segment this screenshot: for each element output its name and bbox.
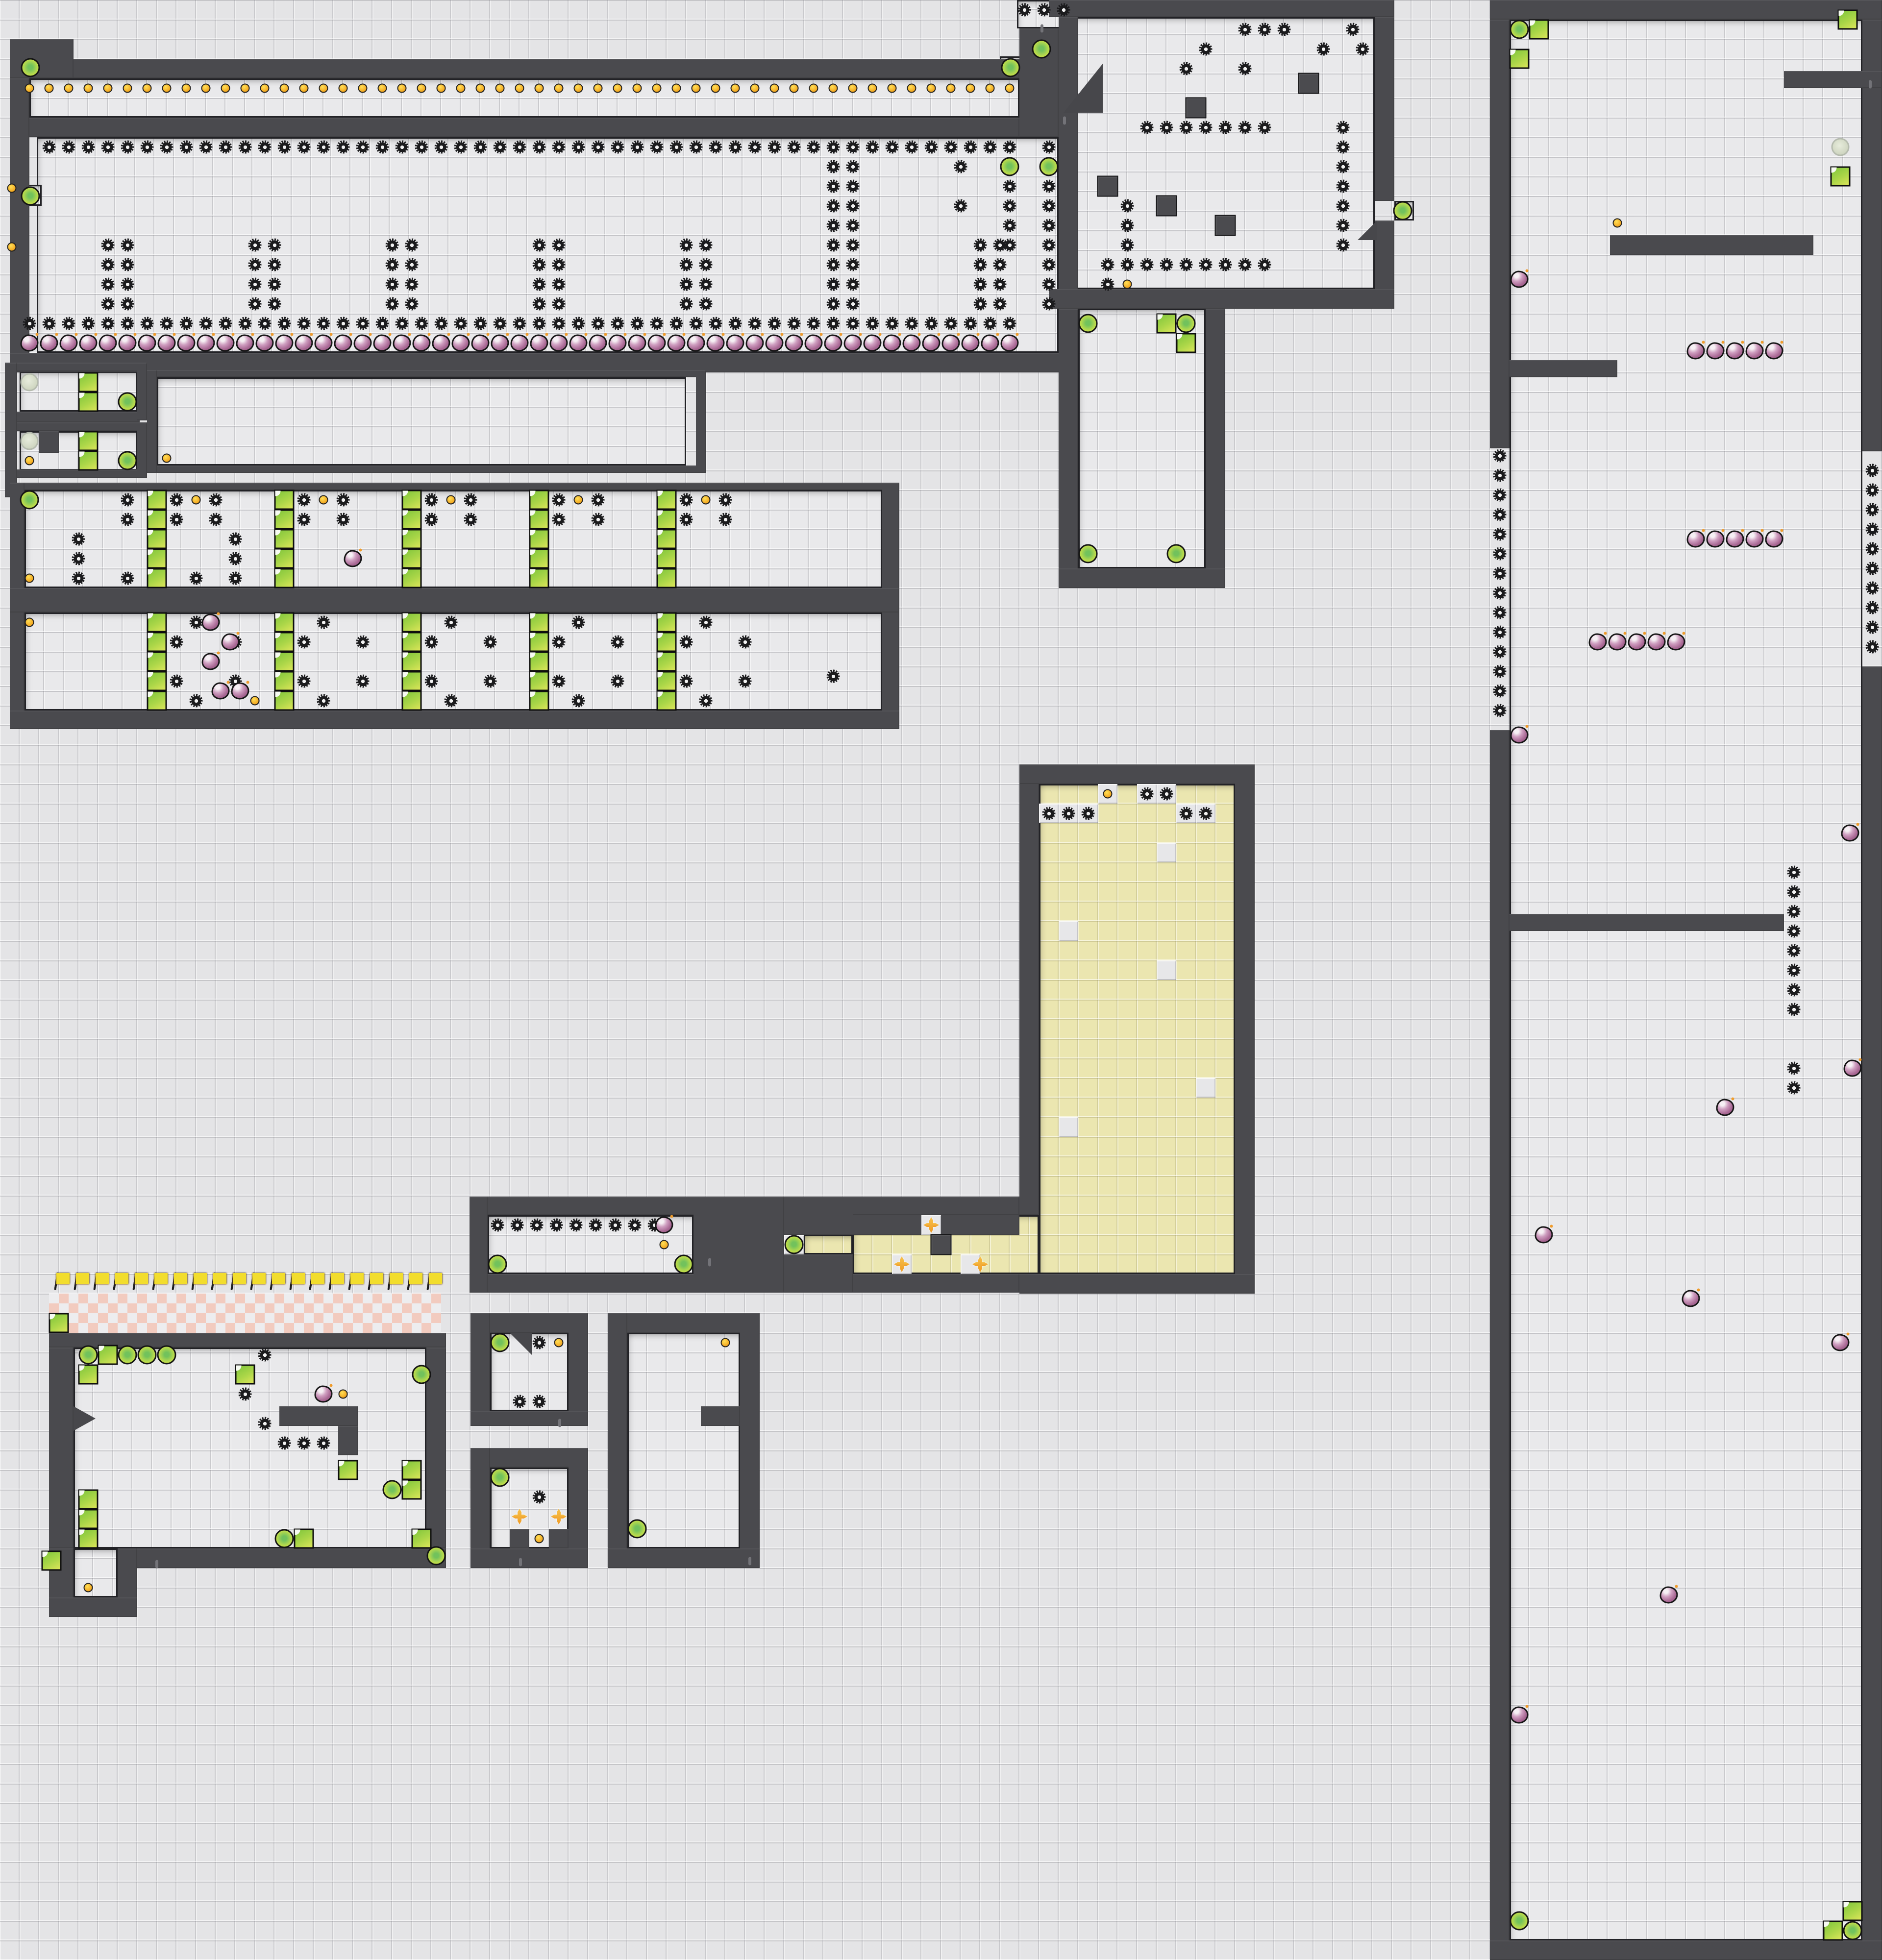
coin-dot[interactable]	[358, 84, 368, 93]
saw-gear-icon[interactable]	[964, 317, 977, 330]
saw-gear-icon[interactable]	[82, 141, 95, 154]
saw-gear-icon[interactable]	[709, 317, 722, 330]
saw-gear-icon[interactable]	[846, 219, 860, 232]
saw-gear-icon[interactable]	[974, 297, 987, 311]
saw-gear-icon[interactable]	[886, 141, 899, 154]
saw-gear-icon[interactable]	[1337, 199, 1350, 213]
saw-gear-icon[interactable]	[1042, 219, 1056, 232]
saw-gear-icon[interactable]	[1787, 944, 1801, 957]
saw-gear-icon[interactable]	[1866, 523, 1879, 536]
crate-tile[interactable]	[657, 612, 677, 633]
saw-gear-icon[interactable]	[827, 141, 840, 154]
saw-gear-icon[interactable]	[846, 160, 860, 173]
saw-gear-icon[interactable]	[533, 1336, 546, 1349]
saw-gear-icon[interactable]	[337, 493, 350, 507]
saw-gear-icon[interactable]	[1199, 121, 1213, 134]
saw-gear-icon[interactable]	[572, 141, 585, 154]
saw-gear-icon[interactable]	[592, 493, 605, 507]
coin-dot[interactable]	[25, 618, 34, 627]
crate-tile[interactable]	[274, 529, 295, 549]
crate-tile[interactable]	[274, 632, 295, 652]
saw-gear-icon[interactable]	[511, 1219, 524, 1232]
saw-gear-icon[interactable]	[954, 199, 967, 213]
saw-gear-icon[interactable]	[1866, 503, 1879, 516]
checkpoint-flag-icon[interactable]	[230, 1273, 247, 1291]
crate-tile[interactable]	[294, 1529, 314, 1549]
crate-tile[interactable]	[402, 529, 422, 549]
saw-gear-icon[interactable]	[533, 239, 546, 252]
crate-tile[interactable]	[402, 1480, 422, 1500]
saw-gear-icon[interactable]	[592, 141, 605, 154]
coin-dot[interactable]	[280, 84, 289, 93]
checkpoint-flag-icon[interactable]	[210, 1273, 227, 1291]
saw-gear-icon[interactable]	[170, 493, 183, 507]
coin-dot[interactable]	[162, 454, 172, 463]
saw-gear-icon[interactable]	[258, 317, 272, 330]
crate-tile[interactable]	[657, 652, 677, 672]
saw-gear-icon[interactable]	[1042, 141, 1056, 154]
saw-gear-icon[interactable]	[356, 675, 370, 688]
saw-gear-icon[interactable]	[748, 317, 762, 330]
saw-gear-icon[interactable]	[1493, 587, 1507, 600]
saw-gear-icon[interactable]	[552, 297, 566, 311]
saw-gear-icon[interactable]	[386, 297, 399, 311]
coin-dot[interactable]	[986, 84, 995, 93]
saw-gear-icon[interactable]	[572, 616, 585, 629]
saw-gear-icon[interactable]	[386, 239, 399, 252]
coin-dot[interactable]	[574, 84, 583, 93]
saw-gear-icon[interactable]	[699, 297, 713, 311]
saw-gear-icon[interactable]	[141, 317, 154, 330]
power-orb[interactable]	[383, 1480, 402, 1499]
coin-dot[interactable]	[731, 84, 740, 93]
saw-gear-icon[interactable]	[984, 141, 997, 154]
saw-gear-icon[interactable]	[219, 317, 232, 330]
coin-dot[interactable]	[84, 84, 93, 93]
saw-gear-icon[interactable]	[405, 278, 419, 291]
saw-gear-icon[interactable]	[170, 636, 183, 649]
saw-gear-icon[interactable]	[1101, 278, 1114, 291]
coin-dot[interactable]	[652, 84, 662, 93]
coin-dot[interactable]	[417, 84, 426, 93]
saw-gear-icon[interactable]	[984, 317, 997, 330]
crate-tile[interactable]	[529, 612, 549, 633]
saw-gear-icon[interactable]	[317, 616, 330, 629]
saw-gear-icon[interactable]	[974, 258, 987, 271]
saw-gear-icon[interactable]	[1121, 219, 1134, 232]
coin-dot[interactable]	[319, 84, 328, 93]
coin-dot[interactable]	[495, 84, 505, 93]
saw-gear-icon[interactable]	[680, 258, 693, 271]
saw-gear-icon[interactable]	[1180, 807, 1193, 820]
saw-gear-icon[interactable]	[23, 317, 36, 330]
coin-dot[interactable]	[192, 495, 201, 505]
inactive-orb[interactable]	[1832, 138, 1850, 156]
saw-gear-icon[interactable]	[1180, 258, 1193, 271]
crate-tile[interactable]	[1529, 20, 1549, 40]
coin-dot[interactable]	[182, 84, 191, 93]
saw-gear-icon[interactable]	[43, 317, 56, 330]
saw-gear-icon[interactable]	[425, 493, 438, 507]
saw-gear-icon[interactable]	[1787, 983, 1801, 997]
saw-gear-icon[interactable]	[1493, 567, 1507, 580]
power-orb[interactable]	[79, 1346, 98, 1365]
coin-dot[interactable]	[966, 84, 975, 93]
saw-gear-icon[interactable]	[533, 278, 546, 291]
saw-gear-icon[interactable]	[680, 297, 693, 311]
checkpoint-flag-icon[interactable]	[347, 1273, 364, 1291]
saw-gear-icon[interactable]	[170, 513, 183, 526]
coin-dot[interactable]	[64, 84, 74, 93]
mover-arrow-icon[interactable]	[972, 1256, 988, 1272]
checkpoint-flag-icon[interactable]	[112, 1273, 129, 1291]
crate-tile[interactable]	[529, 691, 549, 711]
saw-gear-icon[interactable]	[1866, 621, 1879, 634]
saw-gear-icon[interactable]	[258, 1417, 272, 1430]
crate-tile[interactable]	[529, 652, 549, 672]
coin-dot[interactable]	[701, 495, 711, 505]
saw-gear-icon[interactable]	[248, 258, 262, 271]
inactive-orb[interactable]	[21, 373, 39, 392]
saw-gear-icon[interactable]	[317, 141, 330, 154]
saw-gear-icon[interactable]	[1140, 787, 1154, 801]
checkpoint-flag-icon[interactable]	[269, 1273, 286, 1291]
saw-gear-icon[interactable]	[1337, 141, 1350, 154]
power-orb[interactable]	[21, 187, 40, 206]
saw-gear-icon[interactable]	[268, 278, 281, 291]
checkpoint-flag-icon[interactable]	[73, 1273, 90, 1291]
saw-gear-icon[interactable]	[611, 317, 624, 330]
saw-gear-icon[interactable]	[445, 616, 458, 629]
saw-gear-icon[interactable]	[278, 141, 291, 154]
coin-dot[interactable]	[750, 84, 760, 93]
saw-gear-icon[interactable]	[1493, 469, 1507, 482]
saw-gear-icon[interactable]	[846, 199, 860, 213]
saw-gear-icon[interactable]	[866, 141, 879, 154]
saw-gear-icon[interactable]	[484, 636, 497, 649]
saw-gear-icon[interactable]	[827, 278, 840, 291]
coin-dot[interactable]	[25, 84, 34, 93]
saw-gear-icon[interactable]	[425, 636, 438, 649]
saw-gear-icon[interactable]	[1160, 121, 1173, 134]
coin-dot[interactable]	[535, 84, 544, 93]
coin-dot[interactable]	[1103, 789, 1113, 799]
crate-tile[interactable]	[657, 632, 677, 652]
stone-block[interactable]	[1215, 215, 1236, 236]
power-orb[interactable]	[118, 1346, 137, 1365]
saw-gear-icon[interactable]	[1866, 640, 1879, 654]
saw-gear-icon[interactable]	[552, 675, 566, 688]
coin-dot[interactable]	[123, 84, 132, 93]
saw-gear-icon[interactable]	[1160, 787, 1173, 801]
saw-gear-icon[interactable]	[121, 258, 134, 271]
saw-gear-icon[interactable]	[954, 160, 967, 173]
power-orb[interactable]	[1079, 544, 1098, 563]
saw-gear-icon[interactable]	[248, 278, 262, 291]
saw-gear-icon[interactable]	[611, 636, 624, 649]
power-orb[interactable]	[1167, 544, 1186, 563]
saw-gear-icon[interactable]	[297, 1437, 311, 1450]
saw-gear-icon[interactable]	[484, 675, 497, 688]
crate-tile[interactable]	[402, 691, 422, 711]
saw-gear-icon[interactable]	[386, 278, 399, 291]
saw-gear-icon[interactable]	[101, 258, 115, 271]
saw-gear-icon[interactable]	[1160, 258, 1173, 271]
crate-tile[interactable]	[78, 451, 99, 471]
saw-gear-icon[interactable]	[1493, 665, 1507, 678]
saw-gear-icon[interactable]	[491, 1219, 504, 1232]
saw-gear-icon[interactable]	[405, 239, 419, 252]
coin-dot[interactable]	[319, 495, 328, 505]
saw-gear-icon[interactable]	[748, 141, 762, 154]
coin-dot[interactable]	[848, 84, 858, 93]
saw-gear-icon[interactable]	[1787, 905, 1801, 918]
saw-gear-icon[interactable]	[729, 141, 742, 154]
checkpoint-flag-icon[interactable]	[406, 1273, 423, 1291]
saw-gear-icon[interactable]	[1278, 23, 1291, 36]
saw-gear-icon[interactable]	[268, 258, 281, 271]
mover-arrow-icon[interactable]	[551, 1509, 567, 1524]
saw-gear-icon[interactable]	[121, 239, 134, 252]
crate-tile[interactable]	[274, 490, 295, 510]
crate-tile[interactable]	[78, 372, 99, 392]
saw-gear-icon[interactable]	[1101, 258, 1114, 271]
saw-gear-icon[interactable]	[1199, 258, 1213, 271]
checkpoint-flag-icon[interactable]	[191, 1273, 207, 1291]
saw-gear-icon[interactable]	[570, 1219, 583, 1232]
saw-gear-icon[interactable]	[229, 552, 242, 565]
saw-gear-icon[interactable]	[121, 513, 134, 526]
saw-gear-icon[interactable]	[1866, 562, 1879, 575]
power-orb[interactable]	[21, 58, 40, 77]
saw-gear-icon[interactable]	[278, 317, 291, 330]
saw-gear-icon[interactable]	[1042, 239, 1056, 252]
saw-gear-icon[interactable]	[1337, 121, 1350, 134]
saw-gear-icon[interactable]	[1787, 1081, 1801, 1095]
coin-dot[interactable]	[515, 84, 524, 93]
saw-gear-icon[interactable]	[317, 694, 330, 708]
crate-tile[interactable]	[147, 549, 167, 569]
saw-gear-icon[interactable]	[768, 141, 781, 154]
saw-gear-icon[interactable]	[396, 141, 409, 154]
saw-gear-icon[interactable]	[405, 297, 419, 311]
saw-gear-icon[interactable]	[1140, 258, 1154, 271]
checkpoint-flag-icon[interactable]	[308, 1273, 325, 1291]
coin-dot[interactable]	[25, 456, 34, 465]
coin-dot[interactable]	[241, 84, 250, 93]
crate-tile[interactable]	[529, 529, 549, 549]
saw-gear-icon[interactable]	[1866, 484, 1879, 497]
power-orb[interactable]	[491, 1468, 510, 1487]
saw-gear-icon[interactable]	[121, 278, 134, 291]
saw-gear-icon[interactable]	[827, 219, 840, 232]
saw-gear-icon[interactable]	[1199, 43, 1213, 56]
saw-gear-icon[interactable]	[268, 297, 281, 311]
crate-tile[interactable]	[402, 652, 422, 672]
coin-dot[interactable]	[397, 84, 407, 93]
saw-gear-icon[interactable]	[699, 616, 713, 629]
saw-gear-icon[interactable]	[552, 141, 566, 154]
power-orb[interactable]	[1000, 157, 1019, 176]
saw-gear-icon[interactable]	[680, 636, 693, 649]
saw-gear-icon[interactable]	[680, 239, 693, 252]
saw-gear-icon[interactable]	[533, 1395, 546, 1408]
power-orb[interactable]	[1032, 40, 1051, 59]
checkpoint-flag-icon[interactable]	[151, 1273, 168, 1291]
saw-gear-icon[interactable]	[190, 572, 203, 585]
saw-gear-icon[interactable]	[396, 317, 409, 330]
crate-tile[interactable]	[274, 510, 295, 530]
crate-tile[interactable]	[274, 568, 295, 588]
saw-gear-icon[interactable]	[729, 317, 742, 330]
saw-gear-icon[interactable]	[72, 572, 85, 585]
saw-gear-icon[interactable]	[1346, 23, 1360, 36]
saw-gear-icon[interactable]	[631, 141, 644, 154]
saw-gear-icon[interactable]	[827, 258, 840, 271]
saw-gear-icon[interactable]	[1337, 160, 1350, 173]
saw-gear-icon[interactable]	[376, 141, 389, 154]
saw-gear-icon[interactable]	[592, 513, 605, 526]
power-orb[interactable]	[491, 1333, 510, 1352]
saw-gear-icon[interactable]	[72, 533, 85, 546]
saw-gear-icon[interactable]	[170, 675, 183, 688]
berry-enemy[interactable]	[21, 335, 39, 352]
saw-gear-icon[interactable]	[1003, 199, 1016, 213]
saw-gear-icon[interactable]	[1493, 449, 1507, 463]
power-orb[interactable]	[1510, 1911, 1529, 1931]
coin-dot[interactable]	[574, 495, 583, 505]
saw-gear-icon[interactable]	[297, 141, 311, 154]
saw-gear-icon[interactable]	[993, 297, 1007, 311]
saw-gear-icon[interactable]	[415, 317, 428, 330]
saw-gear-icon[interactable]	[1866, 582, 1879, 595]
saw-gear-icon[interactable]	[494, 141, 507, 154]
coin-dot[interactable]	[221, 84, 230, 93]
coin-dot[interactable]	[339, 1390, 348, 1399]
saw-gear-icon[interactable]	[719, 513, 732, 526]
saw-gear-icon[interactable]	[699, 258, 713, 271]
saw-gear-icon[interactable]	[650, 317, 664, 330]
saw-gear-icon[interactable]	[445, 694, 458, 708]
checkpoint-flag-icon[interactable]	[289, 1273, 305, 1291]
coin-dot[interactable]	[299, 84, 309, 93]
saw-gear-icon[interactable]	[1787, 1003, 1801, 1016]
stone-block[interactable]	[931, 1234, 952, 1255]
saw-gear-icon[interactable]	[337, 317, 350, 330]
crate-tile[interactable]	[147, 632, 167, 652]
saw-gear-icon[interactable]	[356, 141, 370, 154]
saw-gear-icon[interactable]	[219, 141, 232, 154]
saw-gear-icon[interactable]	[190, 616, 203, 629]
saw-gear-icon[interactable]	[1787, 866, 1801, 879]
saw-gear-icon[interactable]	[190, 694, 203, 708]
crate-tile[interactable]	[529, 568, 549, 588]
saw-gear-icon[interactable]	[788, 317, 801, 330]
saw-gear-icon[interactable]	[513, 317, 526, 330]
saw-gear-icon[interactable]	[1337, 219, 1350, 232]
crate-tile[interactable]	[147, 490, 167, 510]
saw-gear-icon[interactable]	[1787, 885, 1801, 899]
saw-gear-icon[interactable]	[709, 141, 722, 154]
coin-dot[interactable]	[143, 84, 152, 93]
crate-tile[interactable]	[1838, 10, 1858, 30]
saw-gear-icon[interactable]	[1493, 489, 1507, 502]
crate-tile[interactable]	[78, 431, 99, 451]
saw-gear-icon[interactable]	[1042, 199, 1056, 213]
saw-gear-icon[interactable]	[944, 317, 958, 330]
mover-arrow-icon[interactable]	[512, 1509, 527, 1524]
saw-gear-icon[interactable]	[1199, 807, 1213, 820]
saw-gear-icon[interactable]	[807, 141, 820, 154]
checkpoint-flag-icon[interactable]	[426, 1273, 443, 1291]
saw-gear-icon[interactable]	[297, 513, 311, 526]
saw-gear-icon[interactable]	[62, 317, 75, 330]
coin-dot[interactable]	[339, 84, 348, 93]
saw-gear-icon[interactable]	[993, 258, 1007, 271]
saw-gear-icon[interactable]	[1787, 925, 1801, 938]
saw-gear-icon[interactable]	[925, 141, 938, 154]
coin-dot[interactable]	[613, 84, 622, 93]
saw-gear-icon[interactable]	[454, 141, 468, 154]
crate-tile[interactable]	[402, 549, 422, 569]
crate-tile[interactable]	[1157, 314, 1177, 334]
saw-gear-icon[interactable]	[337, 513, 350, 526]
coin-dot[interactable]	[554, 1338, 564, 1347]
saw-gear-icon[interactable]	[1018, 3, 1031, 17]
crate-tile[interactable]	[529, 671, 549, 691]
saw-gear-icon[interactable]	[464, 513, 477, 526]
saw-gear-icon[interactable]	[1003, 180, 1016, 193]
coin-dot[interactable]	[554, 84, 564, 93]
saw-gear-icon[interactable]	[180, 317, 193, 330]
crate-tile[interactable]	[529, 632, 549, 652]
saw-gear-icon[interactable]	[1493, 685, 1507, 698]
crate-tile[interactable]	[657, 490, 677, 510]
coin-dot[interactable]	[790, 84, 799, 93]
coin-dot[interactable]	[946, 84, 956, 93]
saw-gear-icon[interactable]	[1493, 626, 1507, 639]
saw-gear-icon[interactable]	[297, 493, 311, 507]
power-orb[interactable]	[1079, 314, 1098, 333]
saw-gear-icon[interactable]	[1493, 508, 1507, 521]
crate-tile[interactable]	[147, 612, 167, 633]
checkpoint-flag-icon[interactable]	[249, 1273, 266, 1291]
saw-gear-icon[interactable]	[1121, 258, 1134, 271]
crate-tile[interactable]	[657, 568, 677, 588]
saw-gear-icon[interactable]	[530, 1219, 544, 1232]
saw-gear-icon[interactable]	[1121, 239, 1134, 252]
saw-gear-icon[interactable]	[1180, 62, 1193, 75]
saw-gear-icon[interactable]	[680, 675, 693, 688]
power-orb[interactable]	[20, 490, 39, 510]
coin-dot[interactable]	[907, 84, 916, 93]
saw-gear-icon[interactable]	[846, 297, 860, 311]
saw-gear-icon[interactable]	[739, 636, 752, 649]
coin-dot[interactable]	[535, 1534, 544, 1543]
coin-dot[interactable]	[594, 84, 603, 93]
power-orb[interactable]	[1040, 157, 1059, 176]
crate-tile[interactable]	[402, 612, 422, 633]
crate-tile[interactable]	[274, 652, 295, 672]
saw-gear-icon[interactable]	[62, 141, 75, 154]
inactive-orb[interactable]	[21, 432, 39, 450]
coin-dot[interactable]	[660, 1240, 669, 1249]
crate-tile[interactable]	[657, 691, 677, 711]
crate-tile[interactable]	[402, 510, 422, 530]
saw-gear-icon[interactable]	[886, 317, 899, 330]
saw-gear-icon[interactable]	[552, 636, 566, 649]
saw-gear-icon[interactable]	[1493, 704, 1507, 717]
